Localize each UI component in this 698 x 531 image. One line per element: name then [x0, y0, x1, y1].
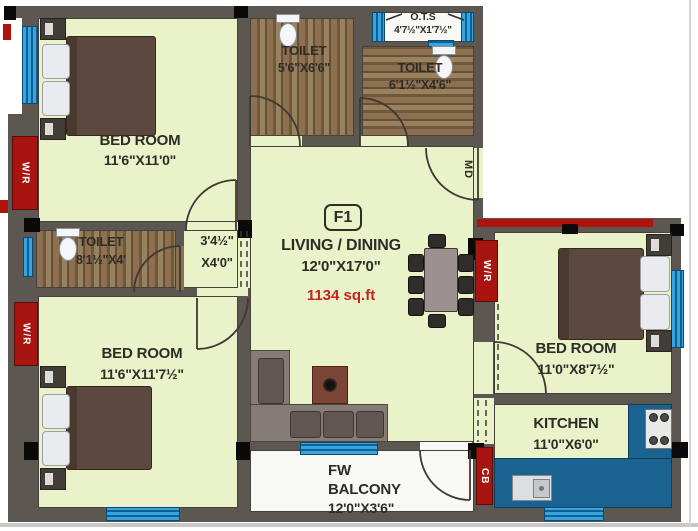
balcony-door-gap	[420, 442, 472, 450]
right-edge-line	[689, 0, 691, 525]
bedroom2-door-gap	[197, 288, 248, 296]
cupboard-label: CB	[479, 468, 490, 484]
column	[670, 224, 684, 236]
column	[672, 442, 688, 458]
column	[236, 442, 250, 460]
wardrobe-label: W/R	[20, 162, 31, 184]
wardrobe-label: W/R	[21, 323, 32, 345]
floor-plan: W/R W/R W/R CB MD	[0, 0, 698, 531]
column	[24, 442, 38, 460]
balcony-line2: BALCONY	[328, 482, 401, 497]
toilet-left-door-gap	[176, 246, 184, 290]
toilet-right-door-gap	[360, 136, 408, 146]
toilet-top-floor	[250, 18, 354, 136]
unit-area: 1134 sq.ft	[251, 288, 431, 303]
main-door-marker: MD	[458, 150, 478, 190]
bed-pillow	[42, 394, 70, 429]
toilet-right-dims: 6'1½"X4'6"	[370, 79, 470, 92]
toilet-top-dims: 5'6"X6'6"	[254, 62, 354, 75]
column	[234, 6, 248, 18]
toilet-top-door-gap	[250, 136, 302, 146]
nightstand	[40, 468, 66, 490]
bed-blanket-bedroom1	[66, 36, 156, 136]
living-dims: 12'0"X17'0"	[251, 259, 431, 274]
sofa-cushion	[290, 411, 321, 438]
toilet-top-name: TOILET	[254, 44, 354, 57]
bottom-divider	[0, 523, 698, 527]
kitchen-opening	[474, 398, 494, 444]
left-wall-red-accent-top	[3, 24, 11, 40]
dining-chair	[458, 298, 474, 316]
living-name: LIVING / DINING	[251, 238, 431, 254]
balcony-line3: 12'0"X3'6"	[328, 501, 394, 515]
passage-dims-line2: X4'0"	[187, 256, 247, 269]
bedroom3-dims: 11'0"X8'7½"	[496, 362, 656, 376]
toilet-left-window	[23, 237, 33, 277]
bedroom1-door-gap	[186, 222, 238, 230]
bed-blanket-bedroom3	[558, 248, 644, 340]
bedroom3-name: BED ROOM	[496, 341, 656, 356]
sofa-cushion	[356, 411, 384, 438]
sofa-cushion	[258, 358, 284, 404]
column	[562, 224, 578, 234]
bedroom1-dims: 11'6"X11'0"	[60, 153, 220, 167]
bedroom1-name: BED ROOM	[60, 133, 220, 148]
bed-pillow	[640, 256, 670, 292]
main-door-label: MD	[462, 160, 474, 179]
wardrobe-label: W/R	[481, 260, 492, 282]
bedroom3-window	[671, 270, 684, 348]
bed-pillow	[42, 44, 70, 79]
unit-badge: F1	[324, 204, 362, 231]
toilet-left-dims: 8'1½"X4'	[51, 254, 151, 267]
toilet-fixture	[276, 14, 300, 23]
ots-name: O.T.S	[374, 12, 472, 23]
bedroom2-name: BED ROOM	[62, 346, 222, 361]
kitchen-window	[544, 507, 604, 521]
column	[4, 6, 16, 20]
kitchen-dims: 11'0"X6'0"	[496, 437, 636, 451]
ots-dims: 4'7½"X1'7½"	[374, 26, 472, 36]
bedroom3-door-gap	[474, 342, 494, 394]
balcony-line1: FW	[328, 463, 351, 478]
column	[24, 218, 40, 232]
bedroom2-dims: 11'6"X11'7½"	[62, 367, 222, 381]
kitchen-name: KITCHEN	[496, 416, 636, 431]
bed-pillow	[42, 431, 70, 466]
toilet-left-name: TOILET	[51, 235, 151, 248]
left-wall-red-accent-mid	[0, 200, 8, 213]
cupboard-kitchen: CB	[476, 447, 493, 505]
wardrobe-bedroom3: W/R	[475, 240, 498, 302]
dining-chair	[458, 254, 474, 272]
nightstand	[40, 18, 66, 40]
toilet-right-name: TOILET	[370, 61, 470, 74]
wardrobe-bedroom1: W/R	[12, 136, 38, 210]
toilet-fixture	[432, 46, 456, 55]
bed-pillow	[640, 294, 670, 330]
bed-blanket-bedroom2	[66, 386, 152, 470]
wardrobe-bedroom2: W/R	[14, 302, 38, 366]
dining-chair	[458, 276, 474, 294]
gas-stove	[645, 409, 672, 449]
dining-chair	[428, 314, 446, 328]
french-window	[300, 442, 378, 455]
kitchen-sink	[512, 475, 552, 501]
bed-pillow	[42, 81, 70, 116]
nightstand	[646, 234, 672, 256]
coffee-table	[312, 366, 348, 404]
passage-dims-line1: 3'4½"	[187, 234, 247, 247]
bedroom1-window	[22, 26, 38, 104]
bedroom2-window	[106, 507, 180, 521]
sofa-cushion	[323, 411, 354, 438]
